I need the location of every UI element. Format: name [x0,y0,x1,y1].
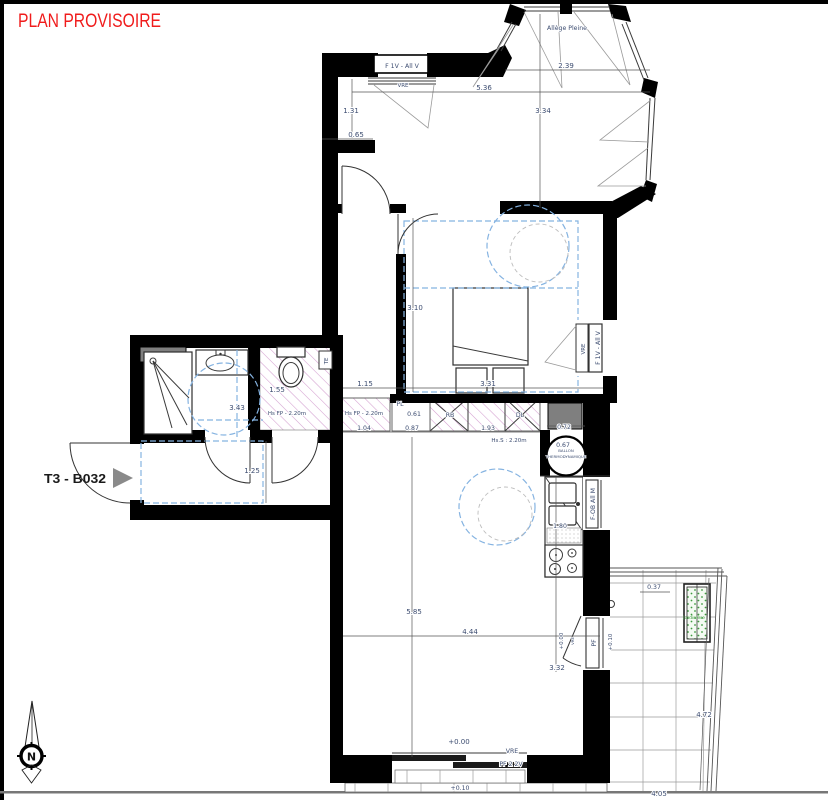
dim-heater-depth: 0.67 [556,442,570,449]
dl-label: DL [516,412,525,419]
dim-planter-width: 0.37 [647,584,661,591]
unit-label: T3 - B032 [44,471,106,486]
door-level-label: +0.00 [559,632,565,649]
floor-plan-drawing: PLAN PROVISOIRE T3 - B032 F 1V - All V V… [0,0,828,800]
compass-n-letter: N [27,751,36,764]
bedroom-furniture [453,288,528,393]
toilet [277,347,305,387]
window-top-label: F 1V - All V [385,63,419,70]
window-kitchen-label: F-OB All M [590,488,597,520]
planter [684,584,710,642]
dim-bath-width: 3.43 [229,404,245,412]
dim-hall2-width: 1.15 [357,380,373,388]
ballon-label-2: THERMODYNAMIQUE [545,454,587,459]
dim-kitchen-height: 1.80 [553,523,567,530]
window-bedroom-label: F 1V - All V [595,330,602,364]
balcony [607,568,727,791]
dim-top-width: 5.36 [476,84,492,92]
dim-hall-width: 0.65 [348,131,364,139]
pf-bottom-label: PF 2 2V [499,761,523,768]
dim-living-height: 5.85 [406,608,422,616]
dim-closet-width: 1.93 [481,425,495,432]
stove [545,545,583,577]
balcony-level-label: +0.10 [608,633,614,650]
dim-balcony-height: 4.72 [696,711,712,719]
living-south-slider [392,753,527,783]
dim-entry-width: 1.25 [244,467,260,475]
wc-door [272,437,318,483]
dim-hall-height: 1.31 [343,107,359,115]
dim-corridor-width: 1.04 [357,425,371,432]
unit-arrow-icon [113,468,133,488]
plan-title: PLAN PROVISOIRE [18,11,161,32]
vre-door-label: VRE [570,637,575,645]
dim-bedroom-width: 3.31 [480,380,496,388]
rb-label: RB [446,412,455,419]
dim-wc-height: 1.55 [269,386,285,394]
dim-living-east: 3.32 [549,664,565,672]
dim-upper-height: 3.34 [535,107,551,115]
level-plus10: +0.10 [451,785,470,792]
bay-casement-swings [473,12,651,186]
vre-bedroom-label: VRE [581,343,587,355]
vre-bottom-label: VRE [506,748,519,755]
terrace-band [345,783,607,792]
sink-drainer [547,528,581,543]
hs-s-label: Hs.S : 2.20m [491,438,526,444]
bathroom-door [205,437,250,483]
floor-plan-sheet: PLAN PROVISOIRE T3 - B032 F 1V - All V V… [0,0,828,800]
hs-fp-wc-label: Hs FP - 2.20m [268,411,306,417]
north-compass: N [17,701,46,783]
vre-top-label: VRE [397,83,409,89]
dim-living-width: 4.44 [462,628,478,636]
dim-heater-width: 0.72 [557,424,571,431]
pl-label: PL [396,401,404,408]
pillow-right [493,368,524,393]
shower [144,352,192,434]
jardiniere-label: Jardinière [682,614,705,621]
pf-label: PF [591,639,598,647]
dim-balcony-width: 4.05 [651,790,667,798]
dim-bay-width: 2.39 [558,62,574,70]
hs-fp-entry-label: Hs FP - 2.20m [345,411,383,417]
te-label: TE [324,357,330,365]
level-zero: +0.00 [448,738,469,746]
dim-bedroom-height: 3.10 [407,304,423,312]
dim-pl-width-2: 0.87 [405,425,419,432]
dim-pl-width: 0.61 [407,411,421,418]
allege-pleine-label: Allège Pleine [547,24,587,32]
sink-bowl-top [549,483,576,503]
upper-room-door [342,166,390,214]
bay-window [473,7,655,186]
